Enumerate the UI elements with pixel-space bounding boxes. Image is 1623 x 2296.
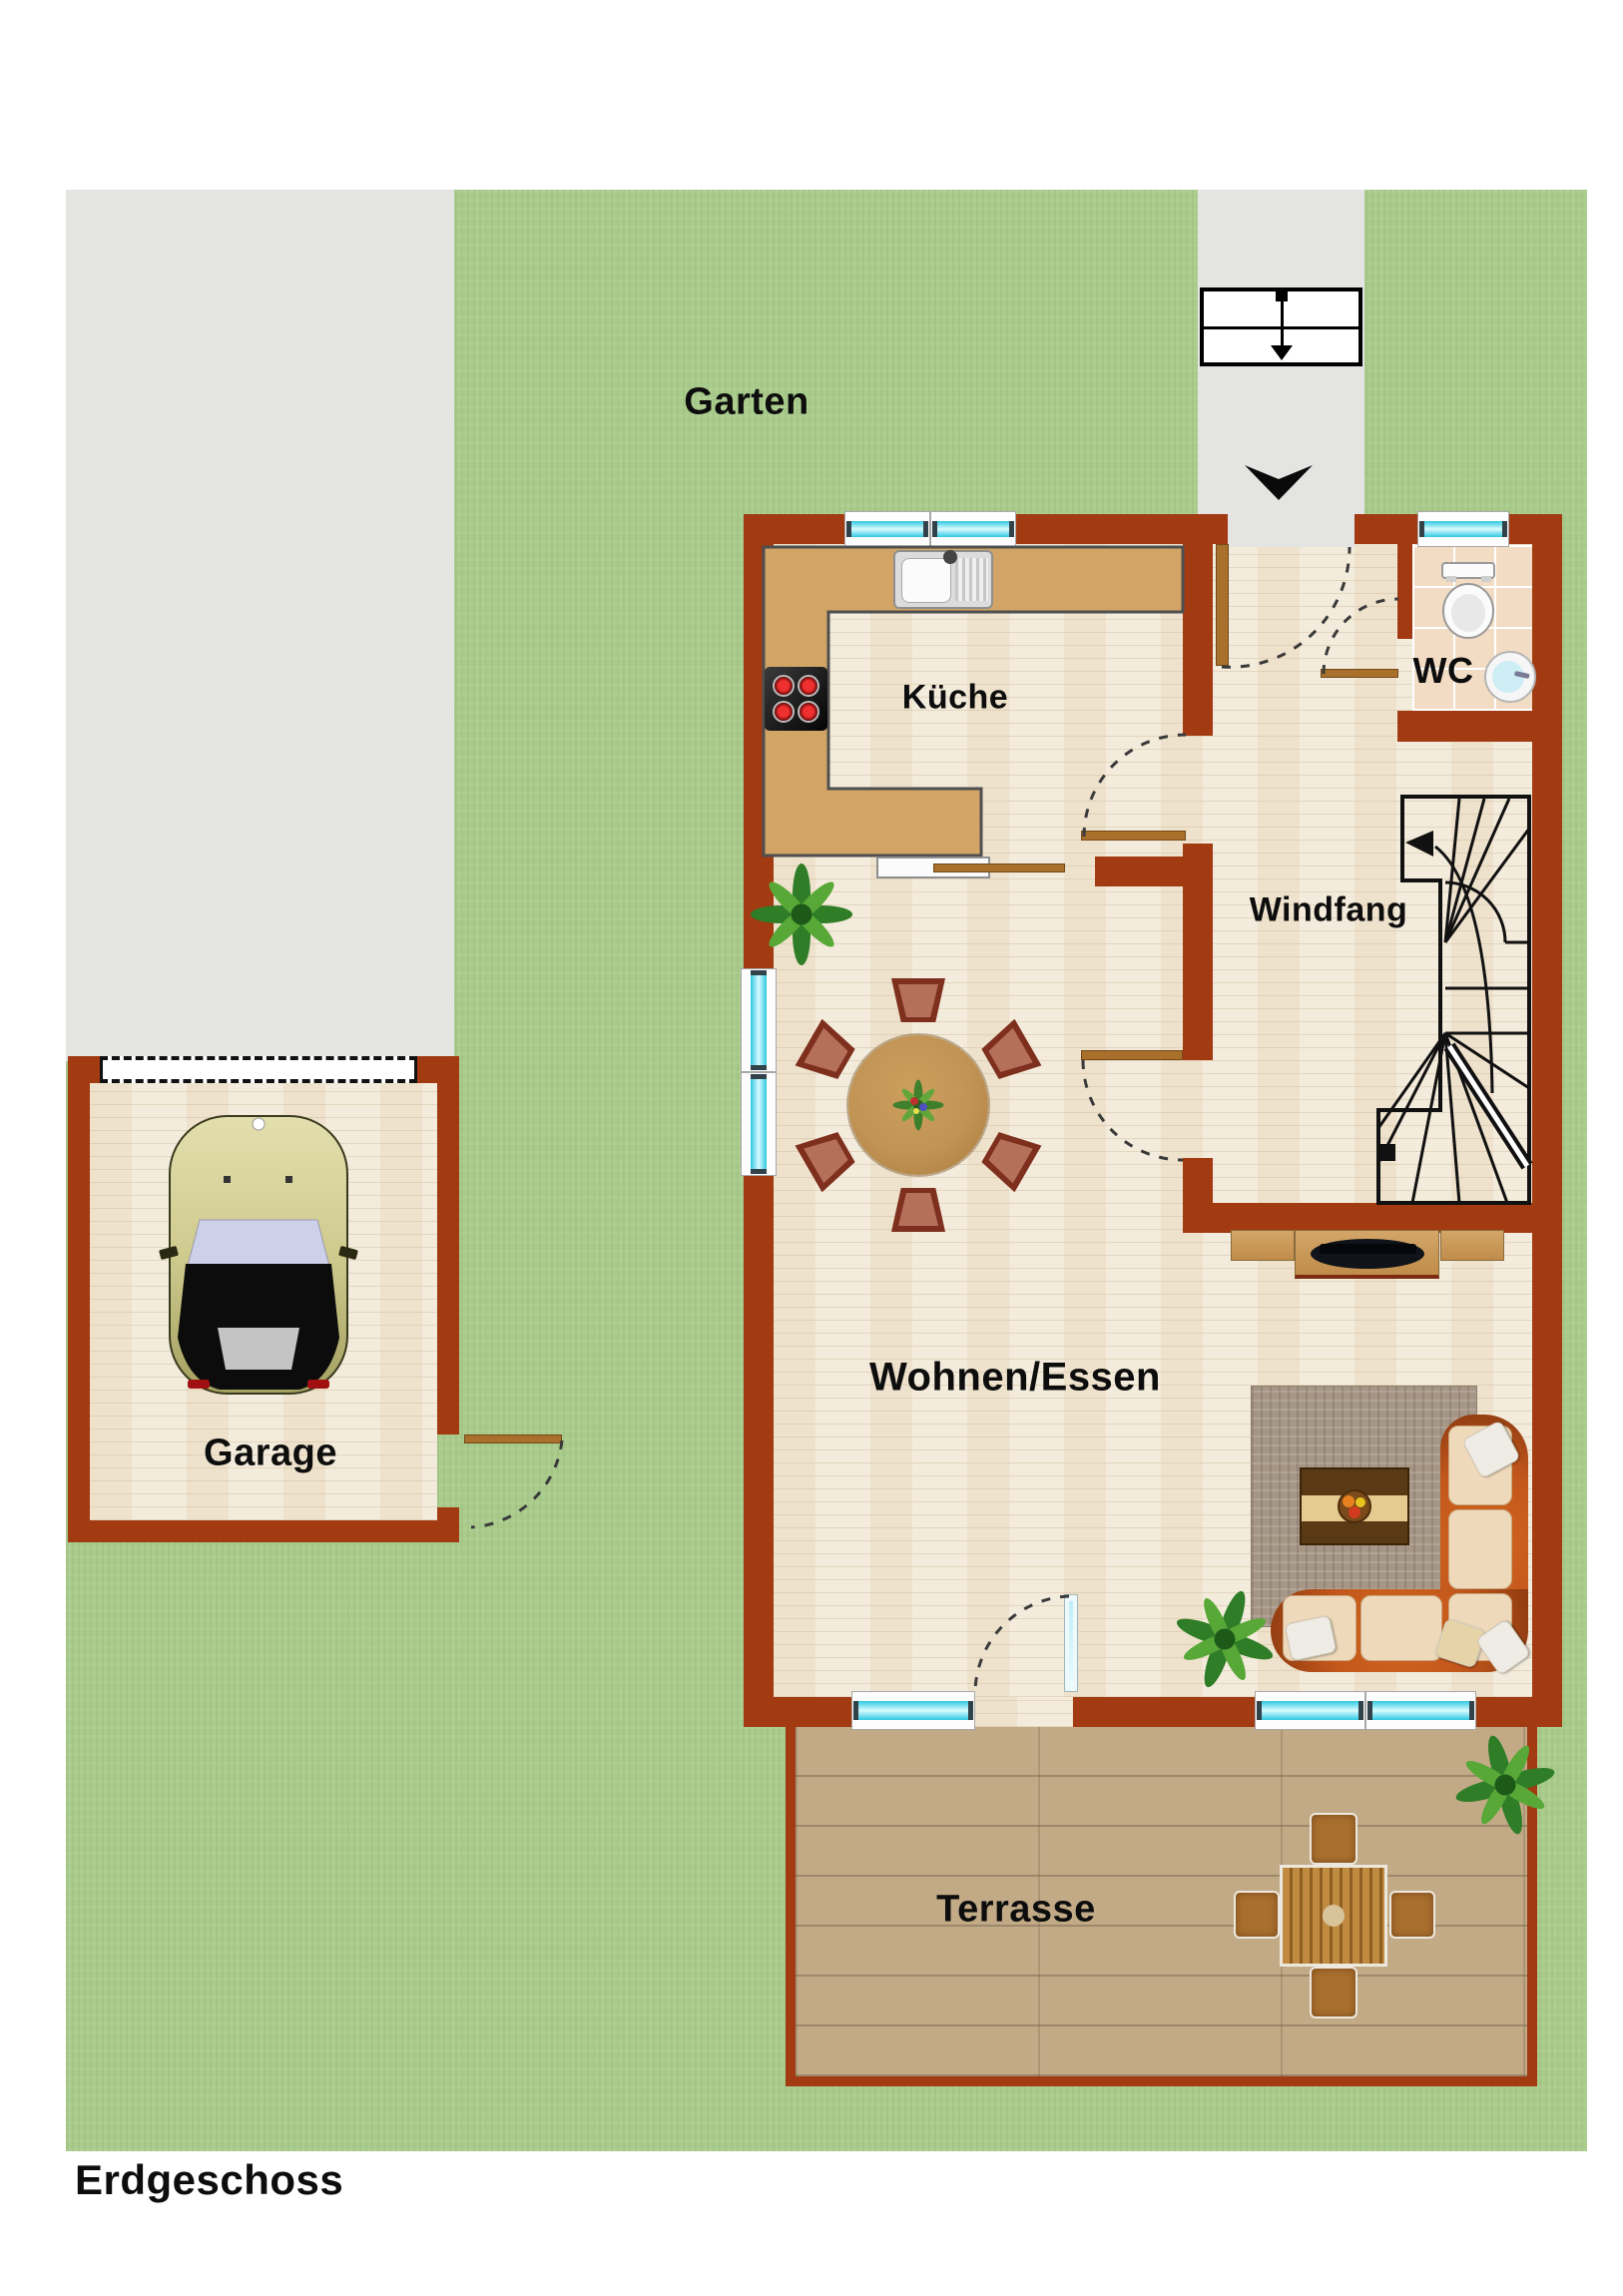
garage-door-swing bbox=[471, 1440, 562, 1527]
wc-washbasin bbox=[1485, 652, 1535, 702]
toilet bbox=[1442, 563, 1494, 638]
kitchen-door-swing bbox=[1084, 735, 1186, 837]
car bbox=[159, 1116, 358, 1394]
page-title: Erdgeschoss bbox=[75, 2156, 343, 2204]
tv bbox=[1311, 1239, 1424, 1269]
plan-overlay-graphics bbox=[0, 0, 1623, 2296]
label-windfang: Windfang bbox=[1250, 891, 1408, 930]
entrance-arrow bbox=[1245, 465, 1313, 500]
plant-dining bbox=[751, 863, 852, 965]
label-garten: Garten bbox=[684, 381, 809, 424]
label-garage: Garage bbox=[204, 1433, 337, 1475]
front-door-swing bbox=[1222, 547, 1350, 667]
plant-living bbox=[1160, 1574, 1291, 1705]
living-door-swing bbox=[1083, 1060, 1183, 1160]
fruit-bowl bbox=[1339, 1490, 1370, 1522]
plant-terrace bbox=[1443, 1723, 1568, 1848]
label-kueche: Küche bbox=[902, 679, 1008, 718]
table-flower bbox=[893, 1080, 944, 1131]
door-swing-arcs bbox=[471, 547, 1398, 1690]
label-wohnen-essen: Wohnen/Essen bbox=[869, 1356, 1161, 1401]
floor-plan: Garten Küche WC Windfang Wohnen/Essen Ga… bbox=[0, 0, 1623, 2296]
terrace-door-swing bbox=[975, 1596, 1069, 1690]
wc-door-swing bbox=[1324, 599, 1398, 674]
label-terrasse: Terrasse bbox=[936, 1889, 1096, 1932]
label-wc: WC bbox=[1413, 650, 1474, 692]
